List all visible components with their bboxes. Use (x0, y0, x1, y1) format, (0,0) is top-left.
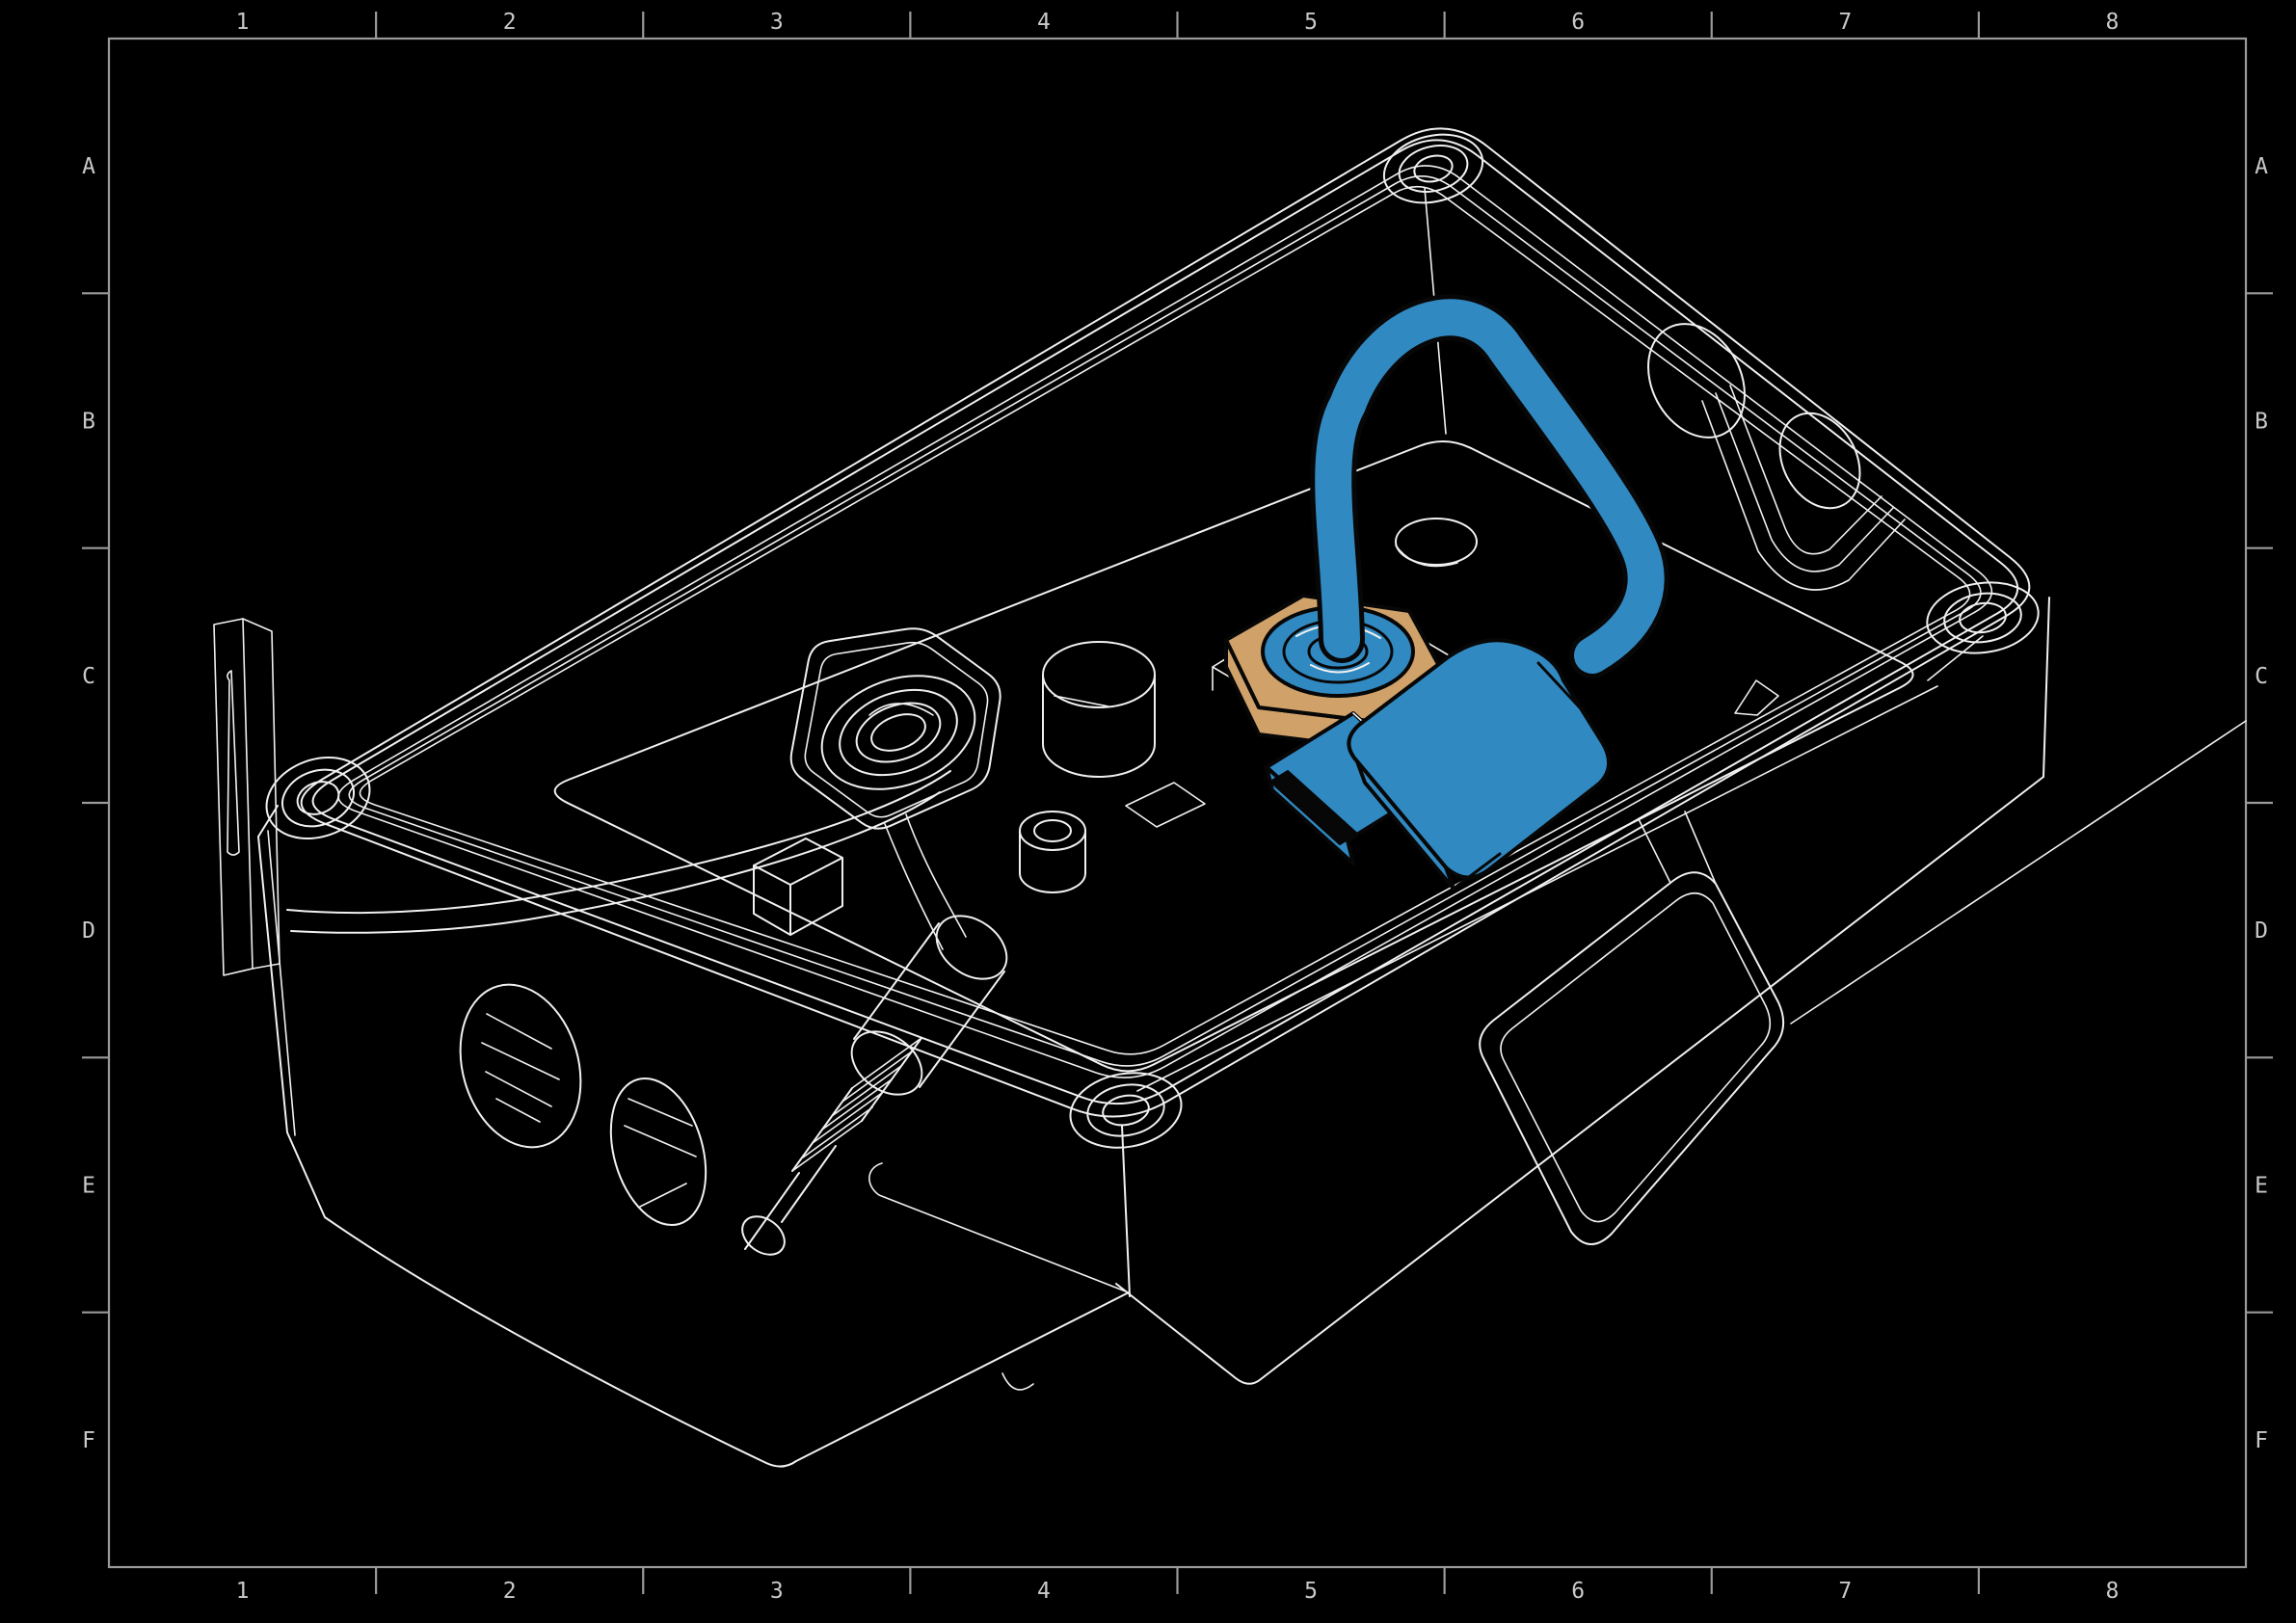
column-label-bottom: 3 (770, 1579, 784, 1604)
gland-hex-outer (791, 628, 1001, 828)
sensor-cable (287, 771, 966, 949)
bushing (1020, 811, 1085, 892)
highlighted-parts (1213, 317, 1646, 889)
row-label-right: D (2255, 918, 2268, 944)
enclosure-line-art (214, 124, 2246, 1466)
grid-reference-ticks (82, 12, 2273, 1594)
wall-hole-1 (1629, 307, 1763, 455)
wall-knockout-2 (595, 1067, 721, 1236)
grid-reference-labels: 1122334455667788AABBCCDDEEFF (82, 10, 2268, 1604)
rim-contour-0 (302, 128, 2030, 1116)
mounting-flange (214, 619, 280, 975)
row-label-left: F (82, 1428, 95, 1453)
column-label-bottom: 7 (1838, 1579, 1852, 1604)
row-label-left: A (82, 154, 95, 179)
column-label-bottom: 1 (236, 1579, 250, 1604)
rim-contour-1 (313, 140, 2018, 1104)
rim-contour-2 (338, 166, 1991, 1078)
column-label-bottom: 2 (503, 1579, 517, 1604)
gland-hex-inner (805, 643, 987, 817)
row-label-left: C (82, 664, 95, 689)
rim-latch-notch (1702, 386, 1905, 590)
isometric-enclosure-drawing: 1122334455667788AABBCCDDEEFF (0, 0, 2296, 1623)
technical-drawing-canvas: 1122334455667788AABBCCDDEEFF (0, 0, 2296, 1623)
row-label-left: D (82, 918, 95, 944)
row-label-left: E (82, 1174, 95, 1199)
mounting-post-d (1043, 642, 1155, 777)
side-cover-flap (1480, 721, 2246, 1244)
column-label-top: 4 (1037, 10, 1051, 35)
column-label-top: 7 (1838, 10, 1852, 35)
row-label-right: F (2255, 1428, 2268, 1453)
row-label-right: A (2255, 154, 2268, 179)
column-label-bottom: 8 (2106, 1579, 2120, 1604)
column-label-bottom: 4 (1037, 1579, 1051, 1604)
cable-gland-nut (791, 628, 1001, 828)
column-label-top: 2 (503, 10, 517, 35)
terminal-block (754, 838, 842, 935)
column-label-top: 3 (770, 10, 784, 35)
wall-knockout-1 (442, 971, 600, 1161)
row-label-right: B (2255, 410, 2268, 435)
seal-groove-rim (302, 128, 2030, 1116)
cable-gland-rings (806, 655, 991, 809)
usb-cable-loop (1333, 317, 1645, 655)
row-label-left: B (82, 410, 95, 435)
seal-post (1396, 519, 1477, 566)
column-label-bottom: 5 (1304, 1579, 1318, 1604)
screw-boss-east (1923, 575, 2043, 659)
border-rect (109, 39, 2246, 1567)
column-label-top: 6 (1571, 10, 1585, 35)
column-label-top: 8 (2106, 10, 2120, 35)
row-label-right: C (2255, 664, 2268, 689)
drawing-border-frame: 1122334455667788AABBCCDDEEFF (82, 10, 2273, 1604)
column-label-top: 5 (1304, 10, 1318, 35)
row-label-right: E (2255, 1174, 2268, 1199)
threaded-connector (735, 903, 1019, 1263)
column-label-top: 1 (236, 10, 250, 35)
column-label-bottom: 6 (1571, 1579, 1585, 1604)
